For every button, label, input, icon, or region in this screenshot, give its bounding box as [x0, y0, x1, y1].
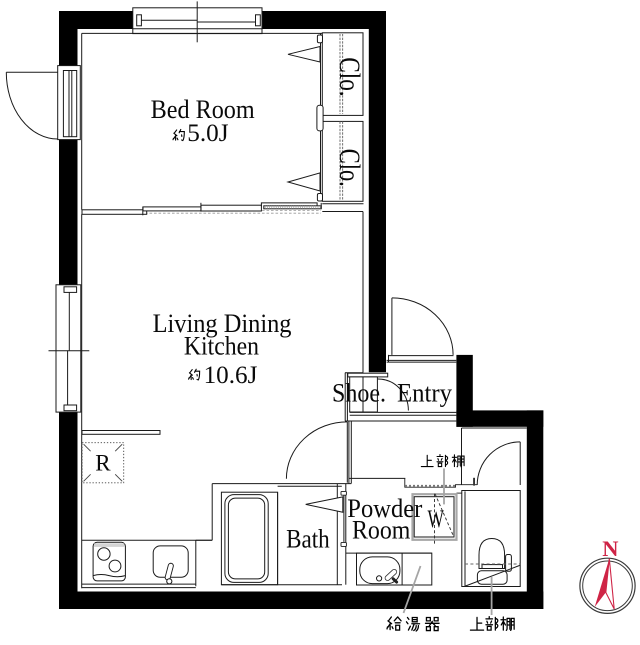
svg-text:Clo.: Clo.: [333, 149, 366, 187]
svg-text:Bath: Bath: [286, 524, 330, 553]
svg-text:Clo.: Clo.: [333, 57, 366, 96]
svg-text:Entry: Entry: [397, 379, 452, 408]
svg-text:Kitchen: Kitchen: [184, 331, 259, 360]
svg-text:W: W: [428, 504, 445, 533]
svg-text:Shoe.: Shoe.: [332, 379, 386, 408]
svg-text:Room: Room: [352, 516, 410, 545]
svg-text:R: R: [95, 451, 111, 476]
svg-text:N: N: [602, 536, 618, 561]
svg-text:10.6J: 10.6J: [204, 362, 258, 389]
svg-text:5.0J: 5.0J: [187, 120, 229, 147]
